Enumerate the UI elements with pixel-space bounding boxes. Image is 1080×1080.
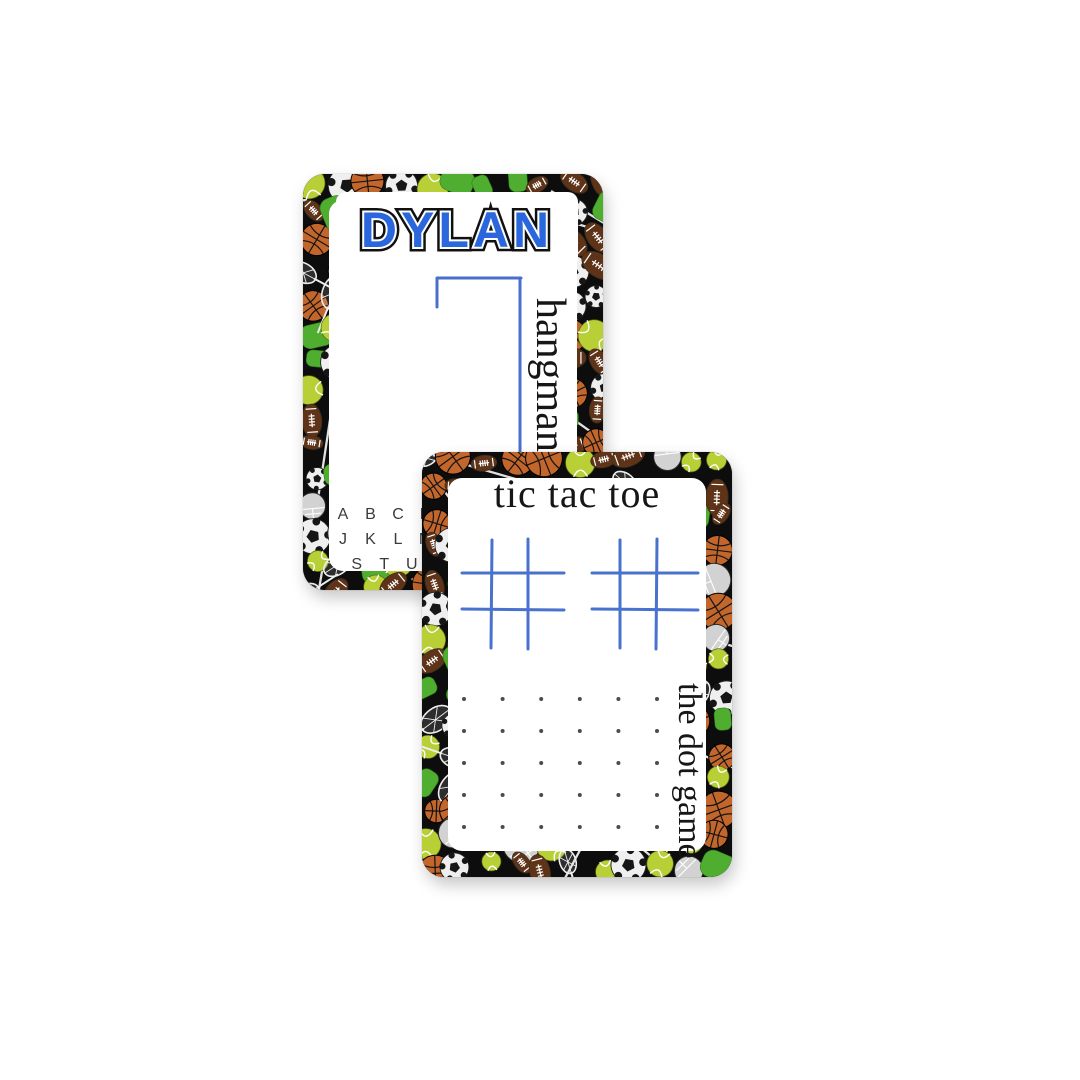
product-photo-scene: hangman ABCDEFGHIJKLMNOPQRSTUVWXYZ DYLAN… (0, 0, 1080, 1080)
name-plate: DYLAN DYLAN DYLAN (336, 192, 578, 268)
hangman-game-label: hangman (529, 298, 571, 452)
alphabet-letter: A (329, 502, 357, 527)
player-name-text: DYLAN DYLAN DYLAN (361, 205, 553, 255)
alphabet-letter: S (343, 552, 371, 577)
alphabet-letter: L (384, 527, 412, 552)
alphabet-letter: K (357, 527, 385, 552)
alphabet-letter: J (329, 527, 357, 552)
tic-tac-toe-board-card: tic tac toe the dot game (422, 452, 732, 877)
alphabet-letter: C (384, 502, 412, 527)
alphabet-letter: T (371, 552, 399, 577)
alphabet-letter: B (357, 502, 385, 527)
dot-game-label: the dot game (672, 683, 706, 859)
